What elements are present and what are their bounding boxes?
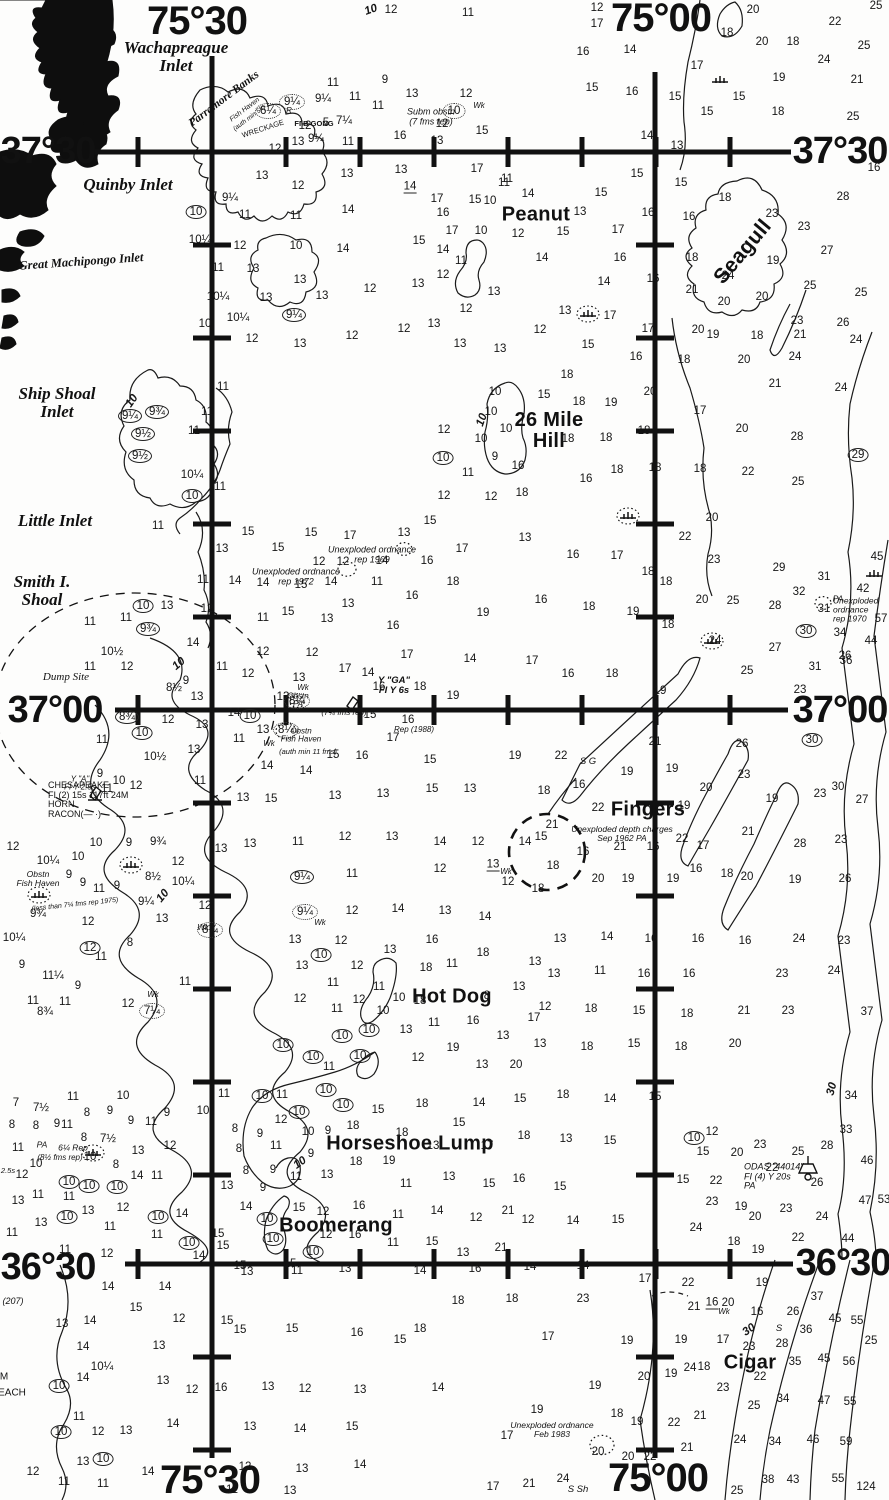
depth-sounding: 19 [447, 690, 460, 702]
chart-annotation: EACH [0, 1389, 26, 1400]
depth-sounding: 11 [216, 661, 228, 673]
depth-sounding: 32 [793, 586, 806, 598]
depth-sounding: 15 [242, 526, 255, 538]
depth-sounding: 11 [61, 1119, 73, 1131]
depth-sounding: 28 [837, 191, 850, 203]
depth-sounding: 18 [751, 330, 764, 342]
depth-sounding: 10 [377, 1005, 390, 1017]
depth-sounding: 15 [586, 82, 599, 94]
depth-sounding: 18 [721, 868, 734, 880]
depth-sounding: 12 [470, 1212, 483, 1224]
depth-sounding: 15 [612, 1214, 625, 1226]
chart-annotation: Unexploded ordnance Feb 1983 [510, 1421, 593, 1439]
depth-sounding: 14 [294, 1423, 307, 1435]
depth-sounding: 20 [731, 1147, 744, 1159]
depth-sounding: 20 [592, 873, 605, 885]
depth-sounding: 14 [414, 1265, 427, 1277]
depth-sounding: 13 [316, 290, 329, 302]
depth-sounding: 10¼ [37, 855, 59, 867]
depth-sounding: 37 [811, 1291, 824, 1303]
depth-sounding: 59 [840, 1436, 853, 1448]
depth-sounding: 11 [67, 1091, 79, 1103]
depth-sounding: 38 [762, 1474, 775, 1486]
depth-sounding: 15 [675, 177, 688, 189]
depth-sounding: 16 [614, 252, 627, 264]
depth-sounding: 22 [829, 16, 842, 28]
depth-sounding: 45 [829, 1313, 842, 1325]
depth-sounding: 16 [351, 1327, 364, 1339]
depth-sounding: 19 [383, 1155, 396, 1167]
depth-sounding: 7½ [33, 1102, 49, 1114]
place-name: Little Inlet [18, 512, 92, 530]
depth-sounding: 10 [359, 1023, 380, 1037]
depth-sounding: 13 [342, 598, 355, 610]
depth-sounding: 13 [384, 944, 397, 956]
depth-sounding: 13 [294, 274, 307, 286]
depth-sounding: 12 [173, 1313, 186, 1325]
depth-sounding: 23 [814, 788, 827, 800]
depth-sounding: 15 [286, 1323, 299, 1335]
depth-sounding: 15 [234, 1324, 247, 1336]
depth-sounding: 12 [346, 330, 359, 342]
depth-sounding: 16 [580, 473, 593, 485]
depth-sounding: 10 [363, 2, 379, 18]
depth-sounding: 11¼ [42, 970, 64, 982]
depth-sounding: 13 [354, 1384, 367, 1396]
depth-sounding: 31 [809, 661, 822, 673]
depth-sounding: 55 [851, 1315, 864, 1327]
depth-sounding: 44 [865, 635, 878, 647]
depth-sounding: 10 [332, 1029, 353, 1043]
depth-sounding: 13 [157, 1375, 170, 1387]
depth-sounding: 11 [342, 136, 354, 148]
depth-sounding: 17 [642, 323, 655, 335]
depth-sounding: 23 [835, 834, 848, 846]
depth-sounding: 19 [789, 874, 802, 886]
depth-sounding: 10 [117, 1090, 130, 1102]
depth-sounding: 12 [320, 1229, 333, 1241]
depth-sounding: 17 [542, 1331, 555, 1343]
depth-sounding: 13 [247, 263, 260, 275]
depth-sounding: 14 [437, 244, 450, 256]
depth-sounding: 24 [709, 635, 722, 647]
depth-sounding: 18 [416, 1098, 429, 1110]
depth-sounding: 10 [273, 1038, 294, 1052]
depth-sounding: 12 [234, 240, 247, 252]
depth-sounding: 124 [856, 1481, 875, 1493]
depth-sounding: 18 [787, 36, 800, 48]
depth-sounding: 9 [164, 1107, 170, 1119]
depth-sounding: 12 [257, 646, 270, 658]
depth-sounding: 10 [132, 726, 153, 740]
depth-sounding: 12 [92, 1426, 105, 1438]
depth-sounding: 14 [598, 276, 611, 288]
depth-sounding: 56 [843, 1356, 856, 1368]
depth-sounding: 10 [311, 948, 332, 962]
depth-sounding: 14 [522, 188, 535, 200]
depth-sounding: 15 [364, 709, 377, 721]
depth-sounding: 13 [244, 1421, 257, 1433]
depth-sounding: 34 [777, 1393, 790, 1405]
coordinate-label: 36°30 [1, 1247, 96, 1287]
depth-sounding: 30 [796, 624, 817, 638]
depth-sounding: 13 [341, 168, 354, 180]
depth-sounding: 16 [394, 130, 407, 142]
depth-sounding: 14 [601, 931, 614, 943]
depth-sounding: 8 [81, 1132, 87, 1144]
depth-sounding: 11 [120, 612, 132, 624]
depth-sounding: 46 [807, 1434, 820, 1446]
depth-sounding: 13 [237, 792, 250, 804]
depth-sounding: 16 [638, 968, 651, 980]
depth-sounding: 14 [228, 707, 241, 719]
depth-sounding: 13 [296, 960, 309, 972]
depth-sounding: 11 [226, 1484, 238, 1496]
depth-sounding: 13 [454, 338, 467, 350]
depth-sounding: 10 [123, 392, 140, 409]
depth-sounding: 23 [776, 968, 789, 980]
depth-sounding: 18 [506, 1293, 519, 1305]
depth-sounding: 21 [686, 284, 699, 296]
depth-sounding: 26 [811, 1177, 824, 1189]
nautical-chart: 75°3075°0037°3037°3037°0037°0036°3036°30… [0, 0, 889, 1500]
depth-sounding: 11 [212, 262, 224, 274]
depth-sounding: 28 [776, 1338, 789, 1350]
depth-sounding: 20 [722, 1297, 735, 1309]
depth-sounding: 17 [344, 530, 357, 542]
fishing-spot-name: Fingers [611, 799, 685, 820]
depth-sounding: 11 [349, 91, 361, 103]
chart-annotation: (8½ fms rep) [37, 1154, 82, 1162]
depth-sounding: 10 [489, 386, 502, 398]
depth-sounding: 13 [257, 724, 270, 736]
depth-sounding: 16 [647, 273, 660, 285]
depth-sounding: 11 [428, 1017, 440, 1029]
depth-sounding: 15 [293, 1202, 306, 1214]
depth-sounding: 19 [767, 255, 780, 267]
coordinate-label: 37°00 [8, 690, 103, 730]
depth-sounding: 16 [683, 211, 696, 223]
depth-sounding: 18 [518, 1130, 531, 1142]
depth-sounding: 12 [346, 905, 359, 917]
depth-sounding: 14 [519, 836, 532, 848]
depth-sounding: 15 [554, 1181, 567, 1193]
depth-sounding: 8¾ [115, 710, 139, 724]
depth-sounding: 21 [495, 1242, 508, 1254]
depth-sounding: 47 [818, 1395, 831, 1407]
depth-sounding: 18 [581, 1041, 594, 1053]
depth-sounding: 18 [611, 464, 624, 476]
depth-sounding: 13 [188, 744, 201, 756]
depth-sounding: 12 [16, 1169, 29, 1181]
depth-sounding: 21 [794, 329, 807, 341]
depth-sounding: 15 [628, 1038, 641, 1050]
depth-sounding: 10 [263, 1232, 284, 1246]
place-name: Wachapreague Inlet [124, 39, 229, 75]
depth-sounding: 19 [654, 685, 667, 697]
depth-sounding: 20 [622, 1451, 635, 1463]
depth-sounding: 12 [335, 935, 348, 947]
depth-sounding: 18 [452, 1295, 465, 1307]
depth-sounding: 18 [611, 1408, 624, 1420]
depth-sounding: 22 [766, 1162, 779, 1174]
depth-sounding: 12 [27, 1466, 40, 1478]
depth-sounding: 26 [839, 650, 852, 662]
depth-sounding: 13 [256, 170, 269, 182]
depth-sounding: 13 [494, 343, 507, 355]
depth-sounding: 8 [236, 1143, 242, 1155]
depth-sounding: 15 [469, 194, 482, 206]
depth-sounding: 18 [585, 1003, 598, 1015]
depth-sounding: 18 [557, 1089, 570, 1101]
depth-sounding: 15 [483, 1178, 496, 1190]
chart-annotation: S Sh [568, 1485, 589, 1495]
depth-sounding: 15 [426, 783, 439, 795]
depth-sounding: 9¼ [282, 308, 306, 322]
depth-sounding: 12 [121, 661, 134, 673]
depth-sounding: 53 [878, 1194, 889, 1206]
depth-sounding: 11 [257, 612, 269, 624]
depth-sounding: 11 [73, 1411, 85, 1423]
depth-sounding: 19 [605, 397, 618, 409]
depth-sounding: 13 [398, 527, 411, 539]
depth-sounding: 10 [252, 1089, 273, 1103]
depth-sounding: 10 [148, 1210, 169, 1224]
depth-sounding: 10 [291, 1154, 308, 1171]
chart-annotation: Obstn Fish Haven [17, 870, 60, 888]
depth-sounding: 13 [428, 318, 441, 330]
depth-sounding: 10 [197, 1105, 210, 1117]
depth-sounding: 30 [832, 781, 845, 793]
depth-sounding: 12 [239, 1461, 252, 1473]
depth-sounding: 9 [325, 1125, 331, 1137]
depth-sounding: 18 [721, 27, 734, 39]
depth-sounding: 9 [308, 1148, 314, 1160]
depth-sounding: 16 [467, 1015, 480, 1027]
depth-sounding: 12 [438, 424, 451, 436]
depth-sounding: 15 [582, 339, 595, 351]
depth-sounding: 13 [296, 1463, 309, 1475]
depth-sounding: 5 [323, 117, 329, 129]
depth-sounding: 16 [573, 779, 586, 791]
depth-sounding: 25 [855, 287, 868, 299]
depth-sounding: 10 [475, 433, 488, 445]
depth-sounding: 9 [492, 451, 498, 463]
depth-sounding: 16 [751, 1306, 764, 1318]
depth-sounding: 9½ [131, 427, 155, 441]
depth-sounding: 10 [170, 655, 188, 672]
depth-sounding: 16 [215, 1382, 228, 1394]
depth-sounding: 13 [161, 600, 174, 612]
depth-sounding: 9 [183, 675, 189, 687]
depth-sounding: 10 [186, 205, 207, 219]
depth-sounding: 10 [79, 1179, 100, 1193]
depth-sounding: 19 [621, 766, 634, 778]
depth-sounding: 19 [477, 607, 490, 619]
depth-sounding: 18 [694, 463, 707, 475]
depth-sounding: 9 [19, 959, 25, 971]
depth-sounding: 13 [377, 788, 390, 800]
chart-annotation: Wk [147, 991, 159, 999]
depth-sounding: 17 [526, 655, 539, 667]
depth-sounding: 13 [241, 1266, 254, 1278]
depth-sounding: 11 [97, 1478, 109, 1490]
depth-sounding: 11 [327, 77, 339, 89]
depth-sounding: 14 [567, 1215, 580, 1227]
depth-sounding: 21 [769, 378, 782, 390]
depth-sounding: 16 [373, 681, 386, 693]
depth-sounding: 9 [97, 768, 103, 780]
depth-sounding: 10 [316, 1083, 337, 1097]
depth-sounding: 11 [96, 734, 108, 746]
depth-sounding: 18 [420, 962, 433, 974]
depth-sounding: 22 [668, 1417, 681, 1429]
depth-sounding: 13 [35, 1217, 48, 1229]
depth-sounding: 15 [697, 1146, 710, 1158]
depth-sounding: 17 [431, 193, 444, 205]
depth-sounding: 18 [686, 252, 699, 264]
depth-sounding: 14 [479, 911, 492, 923]
depth-sounding: 11 [151, 1229, 163, 1241]
depth-sounding: 42 [857, 583, 870, 595]
depth-sounding: 23 [577, 1293, 590, 1305]
depth-sounding: 15 [346, 1421, 359, 1433]
depth-sounding: 9 [270, 1164, 276, 1176]
depth-sounding: 9¼ [308, 133, 324, 145]
depth-sounding: 11 [63, 1191, 75, 1203]
depth-sounding: 12 [117, 1202, 130, 1214]
depth-sounding: 9¼ [222, 192, 238, 204]
depth-sounding: 16 [690, 863, 703, 875]
depth-sounding: 18 [600, 432, 613, 444]
depth-sounding: 21 [688, 1301, 701, 1313]
depth-sounding: 10¼ [172, 876, 194, 888]
depth-sounding: 14 [102, 1281, 115, 1293]
depth-sounding: 9¼ [292, 904, 318, 920]
depth-sounding: 15 [426, 1236, 439, 1248]
depth-sounding: 21 [742, 826, 755, 838]
depth-sounding: 14 [159, 1281, 172, 1293]
depth-sounding: 45 [818, 1353, 831, 1365]
depth-sounding: 15 [514, 1093, 527, 1105]
depth-sounding: 14 [167, 1418, 180, 1430]
depth-sounding: 23 [743, 1341, 756, 1353]
depth-sounding: 20 [644, 386, 657, 398]
chart-annotation: Wk [314, 919, 326, 927]
depth-sounding: 14 [624, 44, 637, 56]
depth-sounding: 11 [371, 576, 383, 588]
depth-sounding: 12 [339, 831, 352, 843]
depth-sounding: 10 [133, 599, 154, 613]
depth-sounding: 25 [741, 665, 754, 677]
depth-sounding: 14 [376, 555, 389, 567]
depth-sounding: 14 [434, 836, 447, 848]
depth-sounding: 19 [735, 1201, 748, 1213]
depth-sounding: 11 [201, 406, 213, 418]
depth-sounding: 12 [706, 1126, 719, 1138]
depth-sounding: 12 [199, 900, 212, 912]
depth-sounding: 25 [792, 476, 805, 488]
depth-sounding: 15 [604, 1135, 617, 1147]
depth-sounding: 8½ [166, 682, 182, 694]
depth-sounding: 11 [373, 981, 385, 993]
depth-sounding: 12 [472, 836, 485, 848]
depth-sounding: 15 [217, 1240, 230, 1252]
depth-sounding: 21 [614, 841, 627, 853]
depth-sounding: 15 [733, 91, 746, 103]
depth-sounding: 9¼ [118, 409, 142, 423]
depth-sounding: 11 [145, 1116, 157, 1128]
depth-sounding: 14 [577, 1260, 590, 1272]
depth-sounding: 24 [835, 382, 848, 394]
depth-sounding: 14 [300, 765, 313, 777]
depth-sounding: 10 [84, 1151, 97, 1163]
depth-sounding: 13 [400, 1024, 413, 1036]
depth-sounding: 11 [218, 1088, 230, 1100]
depth-sounding: 11 [104, 1221, 116, 1233]
depth-sounding: 26 [787, 1306, 800, 1318]
depth-sounding: 12 [82, 916, 95, 928]
depth-sounding: 46 [861, 1155, 874, 1167]
depth-sounding: 12 [7, 841, 20, 853]
coordinate-label: 75°00 [611, 0, 711, 39]
depth-sounding: 16 [512, 460, 525, 472]
depth-sounding: 18 [414, 995, 427, 1007]
depth-sounding: 15 [130, 1302, 143, 1314]
depth-sounding: 11 [323, 1061, 335, 1073]
depth-sounding: 15 [453, 1117, 466, 1129]
depth-sounding: 14 [641, 130, 654, 142]
coordinate-label: 75°00 [608, 1457, 708, 1499]
depth-sounding: 17 [401, 649, 414, 661]
depth-sounding: 13 [560, 1133, 573, 1145]
depth-sounding: 12 [122, 998, 135, 1010]
depth-sounding: 14 [187, 637, 200, 649]
depth-sounding: 20 [696, 594, 709, 606]
depth-sounding: 15 [372, 1104, 385, 1116]
depth-sounding: 14 [193, 1250, 206, 1262]
depth-sounding: 19 [447, 1042, 460, 1054]
depth-sounding: 13 [292, 136, 305, 148]
depth-sounding: 9¾ [136, 622, 160, 636]
depth-sounding: 9 [54, 1118, 60, 1130]
depth-sounding: 10 [107, 1180, 128, 1194]
depth-sounding: 12 [292, 180, 305, 192]
depth-sounding: 15 [221, 1315, 234, 1327]
depth-sounding: 27 [856, 794, 869, 806]
depth-sounding: 17 [694, 405, 707, 417]
depth-sounding: 57 [875, 613, 888, 625]
depth-sounding: 25 [727, 595, 740, 607]
depth-sounding: 24 [816, 1211, 829, 1223]
place-name: Dump Site [43, 672, 89, 684]
depth-sounding: 11 [151, 1170, 163, 1182]
depth-sounding: 19 [773, 72, 786, 84]
depth-sounding: 11 [179, 976, 191, 988]
depth-sounding: 13 [497, 1030, 510, 1042]
depth-sounding: 8 [33, 1120, 39, 1132]
depth-sounding: 10 [30, 1158, 43, 1170]
depth-sounding: 14 [392, 903, 405, 915]
depth-sounding: 15 [538, 389, 551, 401]
depth-sounding: 28 [821, 1140, 834, 1152]
depth-sounding: 14 [604, 1093, 617, 1105]
depth-sounding: 22 [679, 531, 692, 543]
depth-sounding: 23 [717, 1382, 730, 1394]
depth-sounding: 25 [870, 0, 883, 12]
depth-sounding: 13 [120, 1425, 133, 1437]
depth-sounding: 9 [66, 869, 72, 881]
